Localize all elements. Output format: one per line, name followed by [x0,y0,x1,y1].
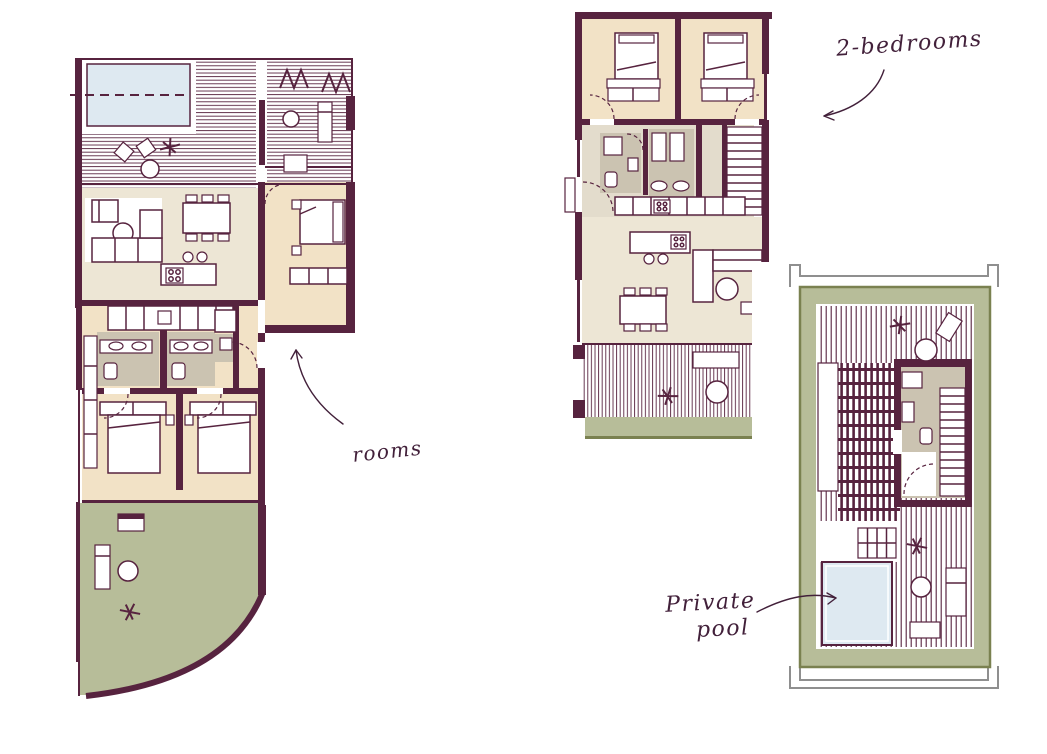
floor-plan-sheet: 2-bedrooms rooms Private pool [0,0,1047,754]
rooms-label: rooms [351,436,423,467]
shower-icon [215,310,236,332]
window-wall [78,390,80,502]
private-garden [80,503,262,695]
table-icon [141,160,159,178]
lounger-icon [95,545,110,589]
lounger-icon [946,568,966,616]
window-wall [577,280,580,342]
private-pool-label-line1: Private [664,588,756,618]
stairs [940,388,965,496]
door-opening [104,388,130,394]
door-opening [735,119,759,125]
dining-table-icon [620,288,667,331]
plan-three-bedroom [70,58,355,696]
wall [82,300,258,306]
washer-icon [220,338,232,350]
plan-roof-terrace [790,265,998,688]
wall [675,18,681,125]
bench-icon [284,155,307,172]
landing [902,452,936,496]
door-opening [893,430,902,454]
planter-icon [818,363,838,491]
wall [76,308,82,390]
window-wall [82,500,265,503]
sink-icon [628,158,638,171]
bench-icon [910,622,940,638]
armchair-icon [92,200,118,222]
annotation-two-bedrooms: 2-bedrooms [824,27,983,120]
bedroom2-furniture [701,33,754,101]
wall [894,359,972,367]
window-wall [577,140,580,177]
kitchen-counter [615,197,745,215]
wall [78,662,80,696]
wall [176,394,183,490]
shower-icon [604,137,622,155]
coffee-table-icon [716,278,738,300]
two-bedrooms-arrow [824,70,884,116]
wall [575,212,582,280]
sink-icon [902,402,914,422]
floor-plan-canvas: 2-bedrooms rooms Private pool [0,0,1047,754]
door-opening [590,119,614,125]
wall [258,505,266,595]
bedroom1-furniture [607,33,660,101]
wall [351,130,353,184]
toilet-icon [104,363,117,379]
garden-table-icon [118,561,138,581]
bed-icon [108,415,160,473]
rooms-arrow [296,350,343,424]
wall [258,182,265,300]
table-icon [706,381,728,403]
bed-icon [198,415,250,473]
wall [582,343,753,345]
annotation-rooms: rooms [291,350,424,467]
window-wall [764,74,767,120]
wall [351,58,353,102]
pergola-decking [838,363,900,521]
wall [575,19,582,140]
two-bedrooms-label: 2-bedrooms [834,27,983,62]
wall [643,129,648,195]
wall [76,502,80,662]
lounger-icon [318,102,332,142]
grill-table-icon [858,528,896,558]
closet-icon [902,372,922,388]
toilet-icon [172,363,185,379]
table-icon [911,577,931,597]
planter-icon [693,352,739,368]
private-pool-label-line2: pool [695,615,750,643]
wall [82,58,353,60]
toilet-icon [920,428,932,444]
plan-two-bedroom [565,12,772,439]
wall [265,325,355,333]
toilet-icon [605,172,617,187]
wall [75,58,82,308]
entry-door-leaf [565,178,575,212]
roof-access-room [893,359,972,507]
wall [894,500,972,507]
table-icon [915,339,937,361]
wall [762,12,769,74]
wall [762,120,769,267]
wall [82,183,352,185]
entry-opening [257,342,266,368]
table-icon [283,111,299,127]
wall [346,96,355,130]
door-opening [197,388,223,394]
green-strip-border [585,436,755,439]
wall [573,345,585,359]
balcony-floor-line [265,166,352,168]
wall [575,12,772,19]
private-pool [822,562,892,645]
wall [965,367,972,507]
wall [573,400,585,418]
dining-table-icon [183,195,230,241]
balcony-wall [259,100,265,165]
green-strip [585,417,755,438]
wardrobe [84,336,97,468]
wall [346,182,355,325]
dresser-icon [290,268,347,284]
